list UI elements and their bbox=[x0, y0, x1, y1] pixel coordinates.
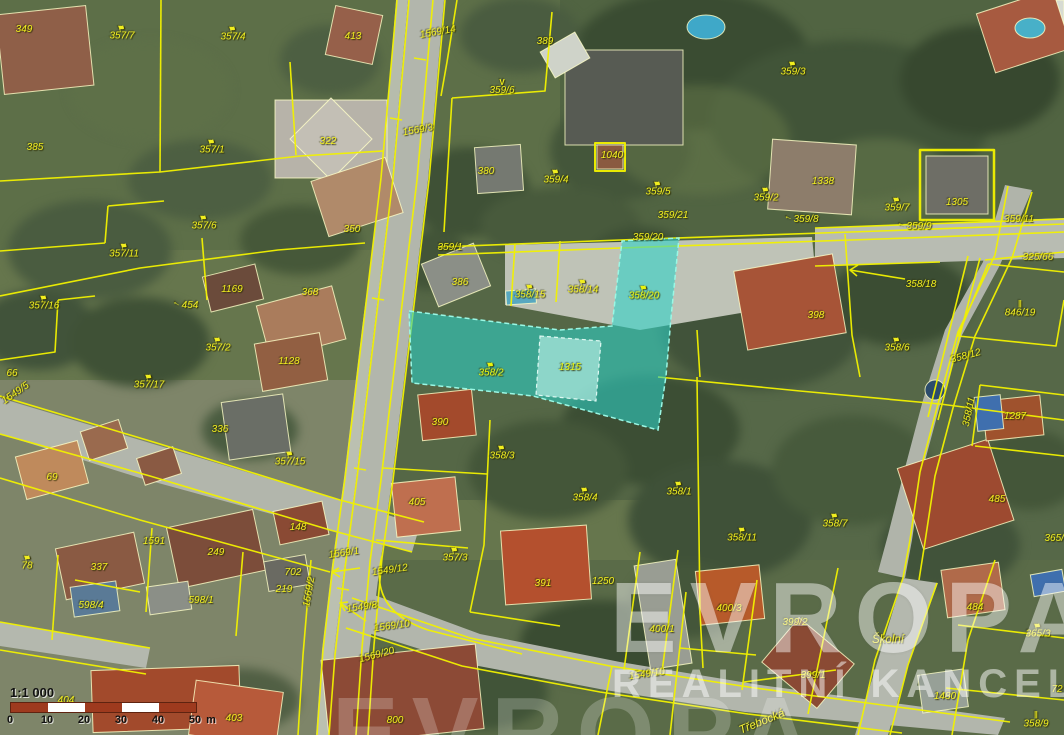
scale-segment bbox=[122, 703, 159, 712]
highlighted-building bbox=[536, 336, 601, 401]
scale-segment bbox=[85, 703, 122, 712]
scale-unit: m bbox=[206, 714, 216, 726]
scale-segment bbox=[48, 703, 85, 712]
scale-segment bbox=[159, 703, 196, 712]
scale-tick-label: 20 bbox=[78, 714, 90, 726]
scale-tick-label: 10 bbox=[41, 714, 53, 726]
scale-bar: 1:1 000 m 01020304050 bbox=[10, 685, 225, 728]
cadastral-map-canvas[interactable]: 349⚑357/7⚑357/44131569/14389V359/6⚑359/3… bbox=[0, 0, 1064, 735]
scale-tick-label: 40 bbox=[152, 714, 164, 726]
scale-bar-ticks: m 01020304050 bbox=[10, 714, 225, 728]
scale-segment bbox=[11, 703, 48, 712]
aerial-imagery bbox=[0, 0, 1064, 735]
scale-ratio: 1:1 000 bbox=[10, 685, 225, 700]
scale-tick-label: 30 bbox=[115, 714, 127, 726]
scale-bar-segments bbox=[10, 702, 197, 713]
scale-tick-label: 50 bbox=[189, 714, 201, 726]
scale-tick-label: 0 bbox=[7, 714, 13, 726]
